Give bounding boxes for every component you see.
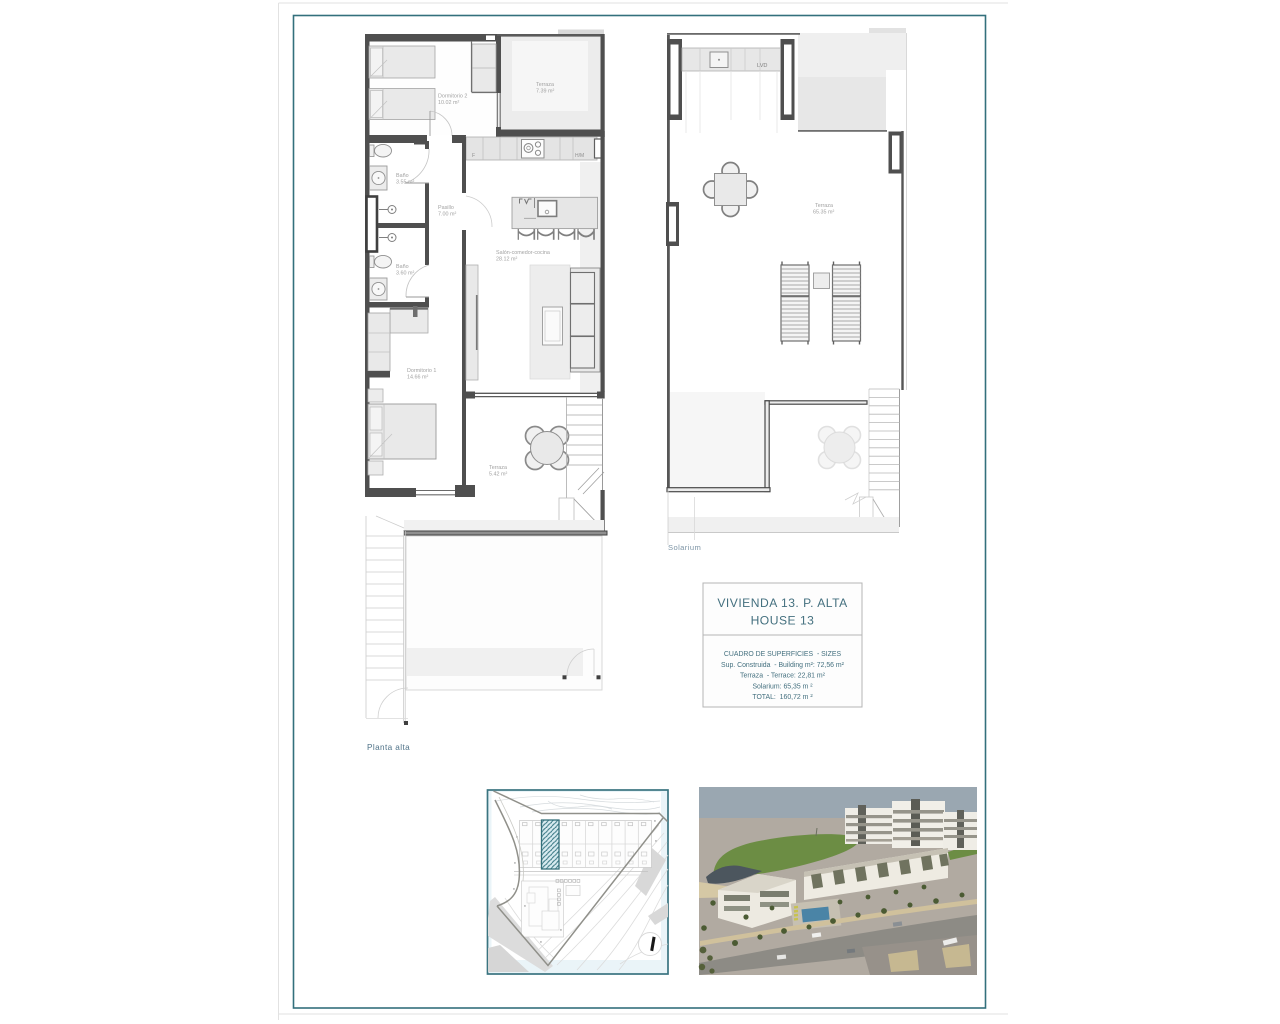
svg-text:Solarium: 65,35 m ²: Solarium: 65,35 m ² xyxy=(752,683,813,690)
svg-text:H/M: H/M xyxy=(575,153,584,159)
svg-text:28.12 m²: 28.12 m² xyxy=(496,257,517,263)
svg-text:7.00 m²: 7.00 m² xyxy=(438,212,456,218)
svg-text:Terraza: Terraza xyxy=(815,203,833,209)
svg-text:14.66 m²: 14.66 m² xyxy=(407,375,428,381)
svg-text:Salón-comedor-cocina: Salón-comedor-cocina xyxy=(496,250,550,256)
svg-text:Pasillo: Pasillo xyxy=(438,205,454,211)
svg-text:TOTAL: 160,72 m ²: TOTAL: 160,72 m ² xyxy=(752,694,813,701)
svg-text:Terraza: Terraza xyxy=(536,82,554,88)
svg-text:VIVIENDA 13. P. ALTA: VIVIENDA 13. P. ALTA xyxy=(717,596,848,610)
svg-text:Dormitorio 1: Dormitorio 1 xyxy=(407,368,436,374)
svg-text:Dormitorio 2: Dormitorio 2 xyxy=(438,94,467,100)
svg-text:Sup. Construida - Building m²: Sup. Construida - Building m²: 72,56 m² xyxy=(721,662,845,669)
svg-text:Baño: Baño xyxy=(396,173,409,179)
svg-text:3.60 m²: 3.60 m² xyxy=(396,271,414,277)
svg-text:Planta alta: Planta alta xyxy=(367,743,410,752)
svg-text:Baño: Baño xyxy=(396,264,409,270)
svg-text:LVD: LVD xyxy=(757,63,767,69)
svg-text:Terraza: Terraza xyxy=(489,465,507,471)
svg-text:7.39 m²: 7.39 m² xyxy=(536,89,554,95)
svg-text:F: F xyxy=(472,153,475,159)
svg-text:5.42 m²: 5.42 m² xyxy=(489,472,507,478)
svg-text:Terraza - Terrace: 22,81 m²: Terraza - Terrace: 22,81 m² xyxy=(740,673,826,680)
svg-text:65.35 m²: 65.35 m² xyxy=(813,210,834,216)
svg-text:Solarium: Solarium xyxy=(668,543,701,552)
svg-text:CUADRO DE SUPERFICIES - SIZES: CUADRO DE SUPERFICIES - SIZES xyxy=(724,651,842,658)
svg-text:HOUSE 13: HOUSE 13 xyxy=(751,614,815,628)
svg-text:10.02 m²: 10.02 m² xyxy=(438,100,459,106)
